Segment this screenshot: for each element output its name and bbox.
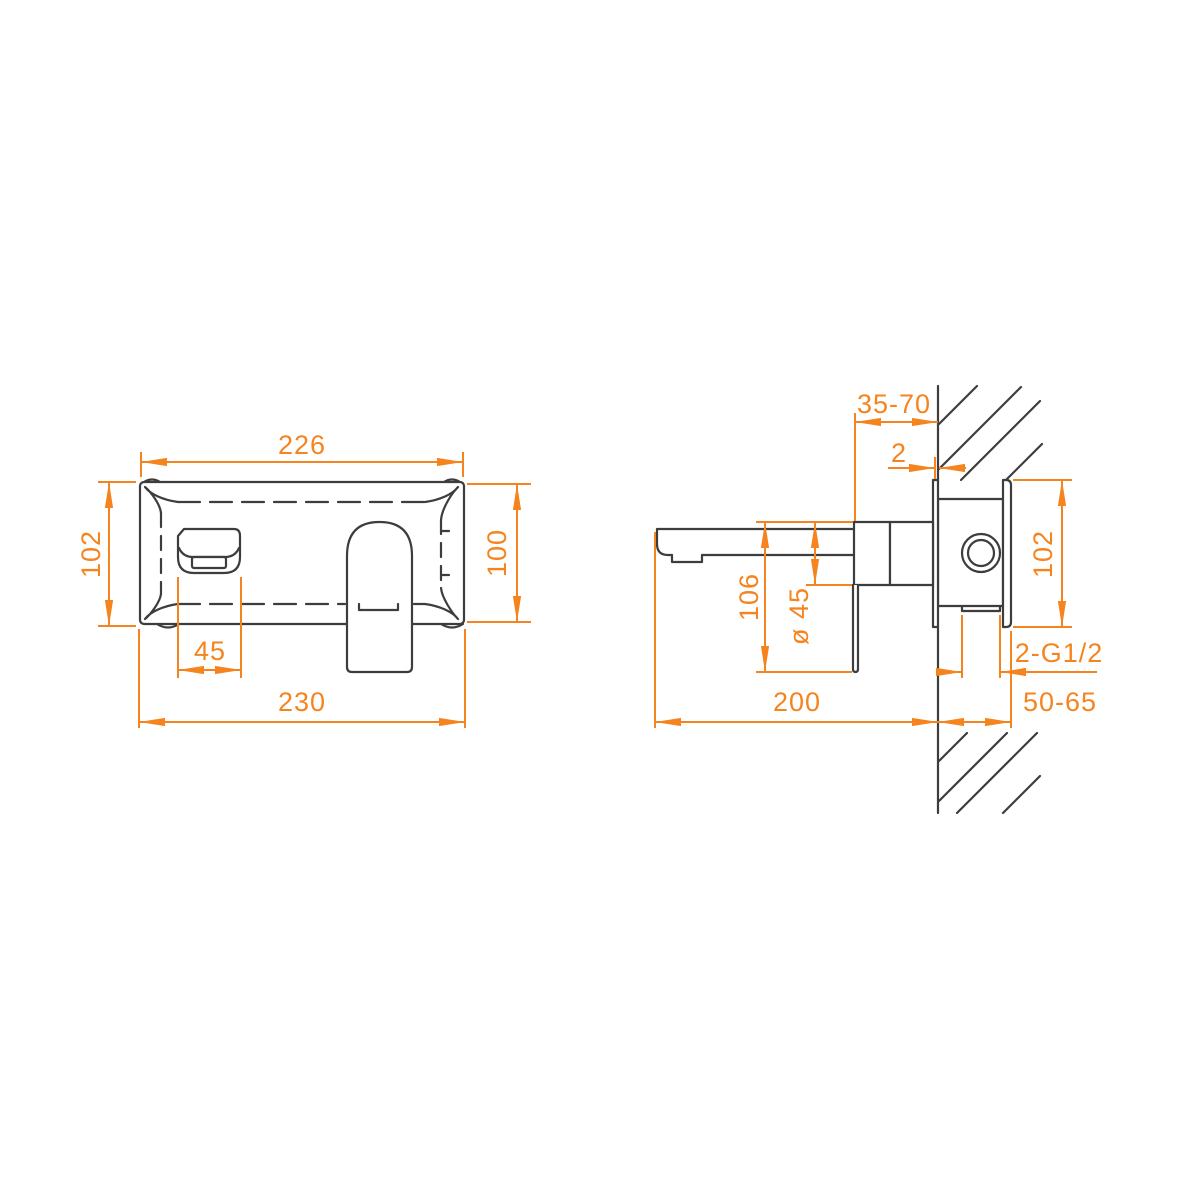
side-view-outline (657, 386, 1042, 813)
dim-label-200: 200 (773, 687, 821, 717)
handle-base-side (854, 522, 890, 585)
front-view: 226 102 100 45 230 (76, 430, 531, 728)
aerator (192, 557, 226, 568)
dim-label-100: 100 (482, 529, 512, 577)
dim-label-50-65: 50-65 (1023, 687, 1097, 717)
ext-2g12 (962, 615, 1000, 678)
wall-connector (890, 522, 933, 585)
side-view: 35-70 2 102 106 ø 45 2-G1/2 (655, 386, 1103, 813)
dim-label-226: 226 (278, 430, 326, 460)
dim-label-35-70: 35-70 (857, 389, 931, 419)
faucet-dimension-drawing: 226 102 100 45 230 (0, 0, 1200, 1200)
handle-lever-side (853, 585, 858, 672)
dim-label-230: 230 (278, 687, 326, 717)
drawing-canvas: 226 102 100 45 230 (0, 0, 1200, 1200)
dim-label-102-side: 102 (1028, 530, 1058, 578)
dim-label-106: 106 (734, 573, 764, 621)
dim-label-45: 45 (194, 636, 226, 666)
front-view-outline (140, 480, 464, 673)
dim-label-dia45: ø 45 (784, 587, 814, 645)
dim-label-2g12: 2-G1/2 (1015, 638, 1104, 668)
wall-hatching-lower (939, 733, 1040, 813)
dim-label-2: 2 (891, 438, 907, 468)
handle-front (347, 522, 412, 672)
spout-side (657, 529, 854, 562)
dim-label-102-left: 102 (76, 530, 106, 578)
wall-hatching-upper (939, 386, 1042, 480)
inwall-back-flange (1003, 480, 1011, 627)
